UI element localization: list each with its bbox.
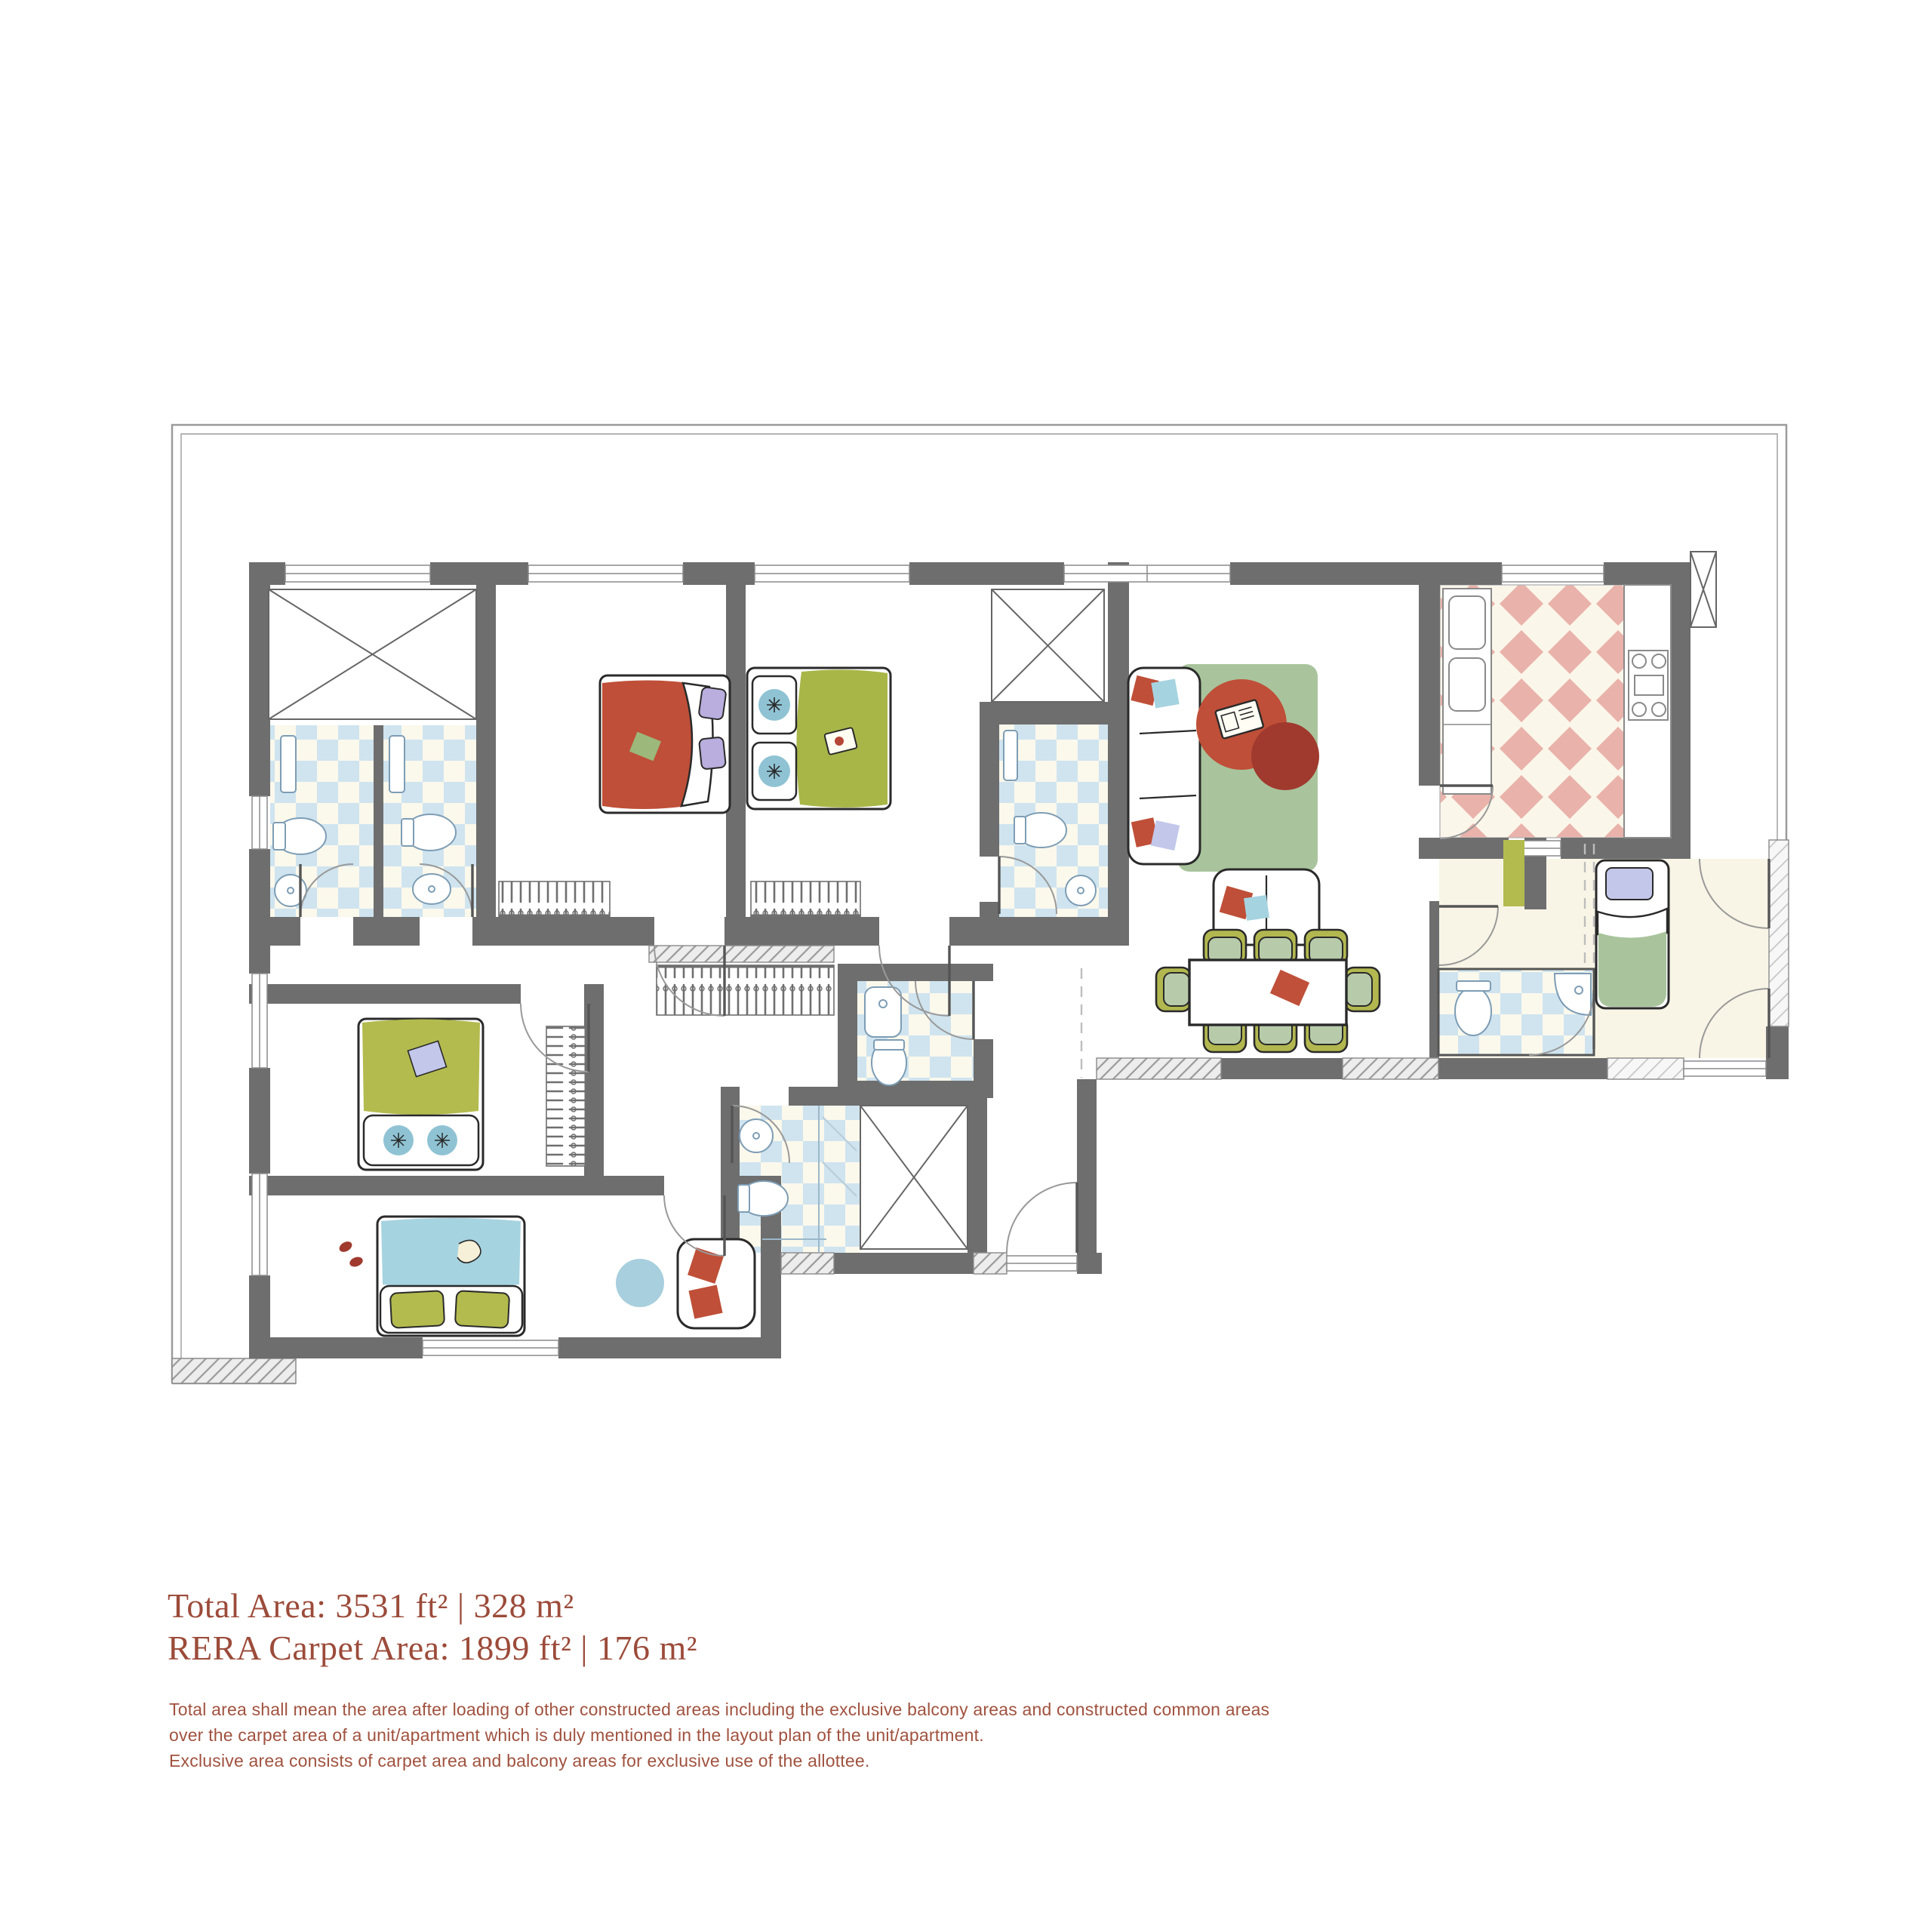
window-left-2 — [252, 974, 267, 1068]
round-rug — [616, 1259, 664, 1307]
kitchen-sink-2 — [1449, 658, 1485, 711]
total-area-text: Total Area: 3531 ft² | 328 m² — [168, 1585, 697, 1627]
threshold-terrace-door — [1684, 1061, 1766, 1076]
olive-pillow — [390, 1291, 445, 1328]
pillow — [1606, 868, 1653, 900]
sink-icon — [865, 987, 901, 1037]
area-summary: Total Area: 3531 ft² | 328 m² RERA Carpe… — [168, 1585, 697, 1669]
window-top-1 — [285, 565, 430, 582]
shaft-3 — [860, 1106, 968, 1249]
terrace-edge-hatch — [172, 1358, 296, 1383]
disclaimer-line-3: Exclusive area consists of carpet area a… — [169, 1748, 1269, 1774]
window-bottom-bed4 — [423, 1340, 558, 1355]
pillow — [698, 687, 726, 720]
disclaimer-line-1: Total area shall mean the area after loa… — [169, 1697, 1269, 1722]
threshold-entry — [1007, 1256, 1077, 1271]
floor-plan-page: Total Area: 3531 ft² | 328 m² RERA Carpe… — [0, 0, 1932, 1932]
pillow — [699, 737, 726, 769]
pillow-band — [364, 1115, 478, 1165]
bedroom-2-bed — [747, 668, 891, 809]
rera-carpet-area-text: RERA Carpet Area: 1899 ft² | 176 m² — [168, 1627, 697, 1669]
olive-pillow — [455, 1291, 509, 1328]
dining-table — [1189, 960, 1346, 1025]
bedroom-4-furniture — [337, 1217, 755, 1336]
wardrobe-bedroom-2 — [751, 881, 860, 917]
bedroom-3-bed — [358, 1019, 483, 1170]
kitchen-hob — [1629, 651, 1668, 720]
window-top-2 — [528, 565, 683, 582]
small-sofa — [678, 1239, 755, 1328]
blue-blanket — [381, 1218, 521, 1287]
living-room-furniture — [1128, 664, 1319, 945]
green-blanket — [1598, 931, 1666, 1007]
disclaimer: Total area shall mean the area after loa… — [169, 1697, 1269, 1774]
olive-cabinet — [1503, 840, 1524, 906]
wardrobe-corridor — [657, 965, 834, 1015]
shaft-2 — [992, 589, 1104, 702]
window-left-1 — [252, 796, 267, 849]
window-left-3 — [252, 1174, 267, 1275]
sofa-3-seat — [1128, 668, 1200, 864]
dining-chair — [1345, 968, 1380, 1011]
window-top-living — [1064, 565, 1230, 582]
dining-set — [1156, 930, 1380, 1052]
shaft-1 — [269, 589, 476, 719]
kitchen-duct — [1690, 552, 1716, 627]
master-bed — [600, 675, 730, 813]
toilet-icon — [1455, 987, 1491, 1035]
slipper — [337, 1239, 354, 1254]
wardrobe-master — [499, 881, 610, 917]
dining-chair — [1156, 968, 1191, 1011]
disclaimer-line-2: over the carpet area of a unit/apartment… — [169, 1722, 1269, 1748]
door-arc-entry — [1007, 1183, 1077, 1253]
window-top-3 — [755, 565, 909, 582]
wardrobe-bedroom-3 — [546, 1026, 587, 1166]
slipper — [348, 1255, 364, 1268]
kitchen-sink-1 — [1449, 596, 1485, 649]
window-top-kitchen — [1502, 565, 1604, 582]
